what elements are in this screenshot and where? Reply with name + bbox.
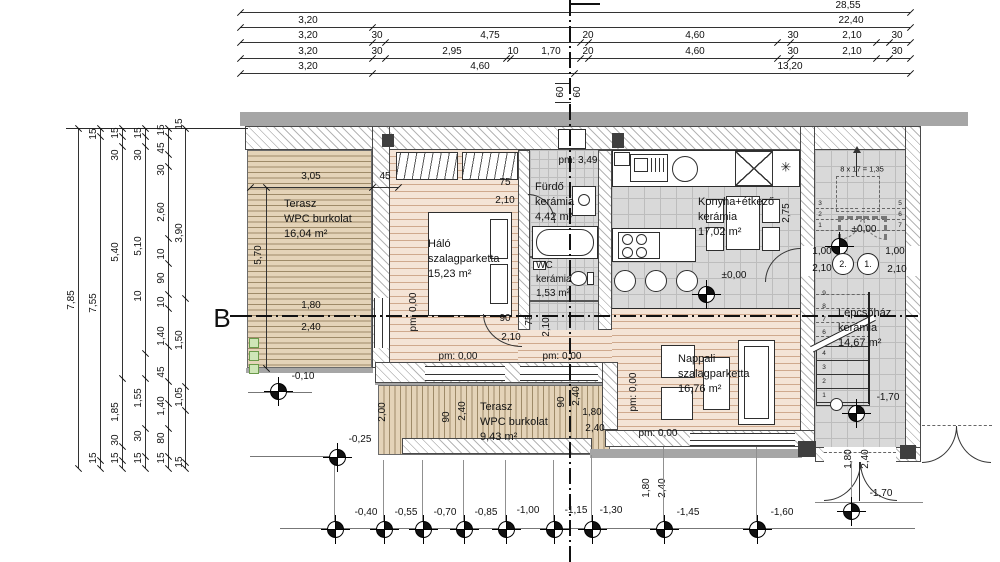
- dim-label: 15: [175, 456, 185, 467]
- stair-step-number: 2: [818, 212, 822, 219]
- dim-row: [240, 12, 910, 13]
- level-text: pm: 0,00: [409, 293, 419, 332]
- dim-label: 15: [89, 128, 99, 139]
- stair-step-number: 4: [822, 351, 826, 358]
- room-area: 17,02 m²: [698, 225, 774, 240]
- dim-label: 2,10: [887, 265, 906, 275]
- level-marker-icon: [498, 521, 515, 538]
- dim-label: 2,40: [458, 401, 468, 420]
- room-area: 1,53 m²: [536, 287, 572, 301]
- gate-door-arc: [922, 426, 957, 463]
- level-marker-icon: [456, 521, 473, 538]
- room-finish: WPC burkolat: [480, 415, 548, 430]
- dim-label: 80: [157, 432, 167, 443]
- dim-label: 1,55: [134, 388, 144, 407]
- dim-row: [240, 73, 910, 74]
- dim-label: 20: [582, 31, 593, 41]
- sink-left-bowl: [634, 158, 648, 172]
- stair-step-number: 7: [898, 223, 902, 230]
- section-line-vertical: [569, 0, 571, 562]
- dim-label: 1,85: [111, 402, 121, 421]
- bar-stool: [645, 270, 667, 292]
- dim-tick: [142, 375, 149, 382]
- level-marker-icon: [749, 521, 766, 538]
- planter-icon: [249, 338, 259, 348]
- dim-tick: [907, 9, 914, 16]
- dim-label: 10: [157, 296, 167, 307]
- level-marker-icon: [546, 521, 563, 538]
- level-marker-icon: [327, 521, 344, 538]
- dim-label: 5,40: [111, 242, 121, 261]
- dim-label: 60: [556, 86, 566, 97]
- level-text: ±0,00: [722, 271, 747, 281]
- dim-label: 2,10: [842, 31, 861, 41]
- level-marker-icon: [656, 521, 673, 538]
- wardrobe: [396, 152, 458, 180]
- dim-label: 4,60: [685, 47, 704, 57]
- level-marker-icon: [415, 521, 432, 538]
- dim-label: 10: [507, 47, 518, 57]
- stair-upper-flight-dashed: [836, 176, 880, 212]
- level-marker-icon: [848, 405, 865, 422]
- dim-label: 30: [134, 149, 144, 160]
- dim-label: 3,20: [298, 31, 317, 41]
- dim-tick: [75, 465, 82, 472]
- dim-label: 2,40: [572, 386, 582, 405]
- room-name: Nappali: [678, 352, 750, 367]
- stair-direction-arrow-icon: [853, 146, 861, 153]
- south-edge-strip: [590, 449, 802, 458]
- dim-label: 30: [891, 47, 902, 57]
- dim-tick: [907, 39, 914, 46]
- dim-label: 4,60: [685, 31, 704, 41]
- dim-tick: [142, 350, 149, 357]
- dim-label: 15: [134, 127, 144, 138]
- room-finish: kerámia: [838, 321, 891, 336]
- dim-label: 1,00: [812, 247, 831, 257]
- wardrobe: [462, 152, 518, 180]
- toilet-bowl: [570, 271, 587, 286]
- dim-label: 7,85: [67, 290, 77, 309]
- dim-tick: [237, 9, 244, 16]
- dim-label: 1,00: [885, 247, 904, 257]
- gate-door-arc: [956, 426, 991, 463]
- stair-step-number: 3: [818, 201, 822, 208]
- dim-tick: [182, 407, 189, 414]
- dim-label: 2,10: [542, 317, 552, 336]
- stair-step-number: 7: [822, 317, 826, 324]
- room-name: Lépcsőház: [838, 306, 891, 321]
- room-label-stairhall: Lépcsőház kerámia 14,67 m²: [838, 306, 891, 351]
- dim-tick: [165, 465, 172, 472]
- dim-label: 1,80: [582, 408, 601, 418]
- level-label: -0,40: [355, 508, 378, 518]
- bar-stool: [614, 270, 636, 292]
- dim-label: 4,75: [480, 31, 499, 41]
- dim-label: 30: [891, 31, 902, 41]
- wall-bedroom-bath: [518, 150, 530, 330]
- level-text: -1,70: [877, 393, 900, 403]
- dim-label: 2,10: [842, 47, 861, 57]
- level-label: -1,45: [677, 508, 700, 518]
- dim-label: 2,95: [442, 47, 461, 57]
- dim-label: 4,60: [470, 62, 489, 72]
- window-terrace-wall: [374, 298, 390, 348]
- dim-label: 10: [134, 290, 144, 301]
- dim-col: [145, 128, 146, 468]
- dim-label: 1,40: [157, 326, 167, 345]
- level-label: -1,60: [771, 508, 794, 518]
- porch-edge-line: [815, 502, 923, 503]
- room-area: 9,43 m²: [480, 430, 548, 445]
- level-marker-icon: [843, 503, 860, 520]
- room-name: Terasz: [284, 197, 352, 212]
- level-marker-icon: [329, 449, 346, 466]
- dim-label: 15: [157, 124, 167, 135]
- door-tag-1: 1.: [857, 253, 879, 275]
- dim-label: 2,40: [861, 449, 871, 468]
- dim-tick: [237, 24, 244, 31]
- exterior-retaining-wall: [240, 112, 968, 126]
- chimney-box: [558, 129, 586, 149]
- dim-label: 30: [787, 47, 798, 57]
- dim-label: 30: [787, 31, 798, 41]
- dim-label: 30: [111, 149, 121, 160]
- level-marker-icon: [376, 521, 393, 538]
- dim-label: 30: [157, 164, 167, 175]
- dim-label: 3,20: [298, 47, 317, 57]
- wall-bath-kitchen: [598, 150, 612, 330]
- dim-tick: [97, 465, 104, 472]
- stair-step-number: 1: [818, 223, 822, 230]
- dim-col: [78, 128, 79, 468]
- dim-row: [240, 58, 910, 59]
- dim-label: 5,10: [134, 236, 144, 255]
- sink-drainer-icon: [651, 158, 664, 172]
- dim-row: [240, 27, 910, 28]
- level-text: pm: 0,00: [639, 429, 678, 439]
- burner-icon: [636, 234, 647, 245]
- window-living-south: [690, 433, 795, 446]
- dim-tick: [907, 55, 914, 62]
- counter-module: [614, 152, 630, 166]
- dim-tick: [873, 39, 880, 46]
- section-line-b-end: [232, 315, 252, 317]
- bar-stool: [676, 270, 698, 292]
- room-name: Háló: [428, 237, 500, 252]
- room-finish: szalagparketta: [428, 252, 500, 267]
- dim-label: 1,05: [175, 387, 185, 406]
- level-label: -1,00: [517, 506, 540, 516]
- window-bedroom-south: [425, 366, 505, 381]
- dim-label: 90: [557, 396, 567, 407]
- level-label: -0,10: [292, 372, 315, 382]
- level-label: -1,70: [870, 489, 893, 499]
- dim-label: 1,80: [301, 301, 320, 311]
- dim-label: 45: [379, 172, 390, 182]
- level-marker-icon: [270, 383, 287, 400]
- dim-label: 15: [134, 452, 144, 463]
- room-label-wc: WC kerámia 1,53 m²: [536, 259, 572, 301]
- level-text: pm: 3,49: [559, 156, 598, 166]
- room-label-kitchen: Konyha+étkező kerámia 17,02 m²: [698, 195, 774, 240]
- fridge-icon: [735, 151, 773, 186]
- level-label: -0,25: [349, 435, 372, 445]
- room-finish: kerámia: [698, 210, 774, 225]
- freezer-snowflake-icon: ✳: [781, 161, 792, 176]
- wall-terrace-living: [602, 362, 618, 430]
- dim-row: [240, 42, 910, 43]
- dim-label: 45: [157, 142, 167, 153]
- dim-tick: [165, 235, 172, 242]
- level-label: -1,30: [600, 506, 623, 516]
- dim-label: 1,40: [157, 396, 167, 415]
- room-label-terrace-lower: Terasz WPC burkolat 9,43 m²: [480, 400, 548, 445]
- dim-tick: [119, 465, 126, 472]
- dim-col: [100, 128, 101, 468]
- chimney-block: [612, 133, 624, 148]
- bathtub-basin: [536, 229, 594, 256]
- dim-label: 15: [111, 127, 121, 138]
- room-name: Terasz: [480, 400, 548, 415]
- planter-icon: [249, 364, 259, 374]
- dim-label: 15: [157, 452, 167, 463]
- section-line-b: [230, 315, 918, 317]
- dim-tick: [119, 375, 126, 382]
- stair-step-number: 6: [822, 330, 826, 337]
- stair-step-number: 1: [822, 393, 826, 400]
- level-text: pm: 0,00: [629, 373, 639, 412]
- dim-tick: [165, 425, 172, 432]
- dim-label: 22,40: [838, 16, 863, 26]
- round-basin: [672, 156, 698, 182]
- dim-label: 2,10: [812, 264, 831, 274]
- stair-step-number: 5: [898, 201, 902, 208]
- door-terrace-lower: [520, 366, 598, 381]
- stair-step-number: 6: [898, 212, 902, 219]
- room-label-terrace-upper: Terasz WPC burkolat 16,04 m²: [284, 197, 352, 242]
- dim-tick: [571, 70, 578, 77]
- dim-label: 1,70: [541, 47, 560, 57]
- dim-label: 2,75: [782, 203, 792, 222]
- door-tag-text: 1.: [864, 259, 872, 269]
- room-label-bedroom: Háló szalagparketta 15,23 m²: [428, 237, 500, 282]
- stair-newel: [830, 398, 843, 411]
- section-line-end: [570, 3, 600, 5]
- dim-label: 15: [175, 118, 185, 129]
- dim-label: 2,10: [495, 196, 514, 206]
- dim-label: 90: [442, 411, 452, 422]
- stair-note: 8 x 17 = 1,35: [840, 165, 884, 173]
- dim-label: 2,40: [585, 424, 604, 434]
- burner-icon: [622, 234, 633, 245]
- dim-label: 75: [499, 178, 510, 188]
- dim-label: 15: [111, 452, 121, 463]
- dim-label: 90: [157, 272, 167, 283]
- door-tag-text: 2.: [839, 259, 847, 269]
- burner-icon: [622, 247, 633, 258]
- level-marker-icon: [698, 286, 715, 303]
- dim-label: 30: [371, 31, 382, 41]
- planter-icon: [249, 351, 259, 361]
- room-finish: szalagparketta: [678, 367, 750, 382]
- dim-label: 2,00: [378, 402, 388, 421]
- dim-tick: [237, 70, 244, 77]
- dim-label: 1,80: [844, 449, 854, 468]
- dim-label: 20: [582, 47, 593, 57]
- floor-plan-canvas: ✳ 28,55 3,20: [0, 0, 1000, 562]
- dim-tick: [382, 39, 389, 46]
- dim-tick: [237, 55, 244, 62]
- room-area: 16,76 m²: [678, 382, 750, 397]
- stair-step-dashed: [862, 208, 905, 209]
- dim-tick: [382, 55, 389, 62]
- level-label: -0,85: [475, 508, 498, 518]
- dim-tick: [907, 70, 914, 77]
- level-text: ±0,00: [852, 225, 877, 235]
- room-finish: kerámia: [536, 273, 572, 287]
- level-label: -0,55: [395, 508, 418, 518]
- dim-label: 7,55: [89, 293, 99, 312]
- dim-label: 15: [89, 452, 99, 463]
- dim-label: 13,20: [777, 62, 802, 72]
- dim-col: [168, 128, 169, 468]
- wall-east-exterior: [905, 126, 921, 462]
- level-text: pm: 0,00: [439, 352, 478, 362]
- room-area: 14,67 m²: [838, 336, 891, 351]
- dim-label: 2,10: [501, 333, 520, 343]
- section-letter-b: B: [213, 305, 230, 331]
- dim-label: 3,05: [301, 172, 320, 182]
- dim-label: 2,40: [301, 323, 320, 333]
- washbasin-bowl-icon: [578, 194, 590, 206]
- dim-label: 30: [371, 47, 382, 57]
- room-name: Konyha+étkező: [698, 195, 774, 210]
- toilet-tank: [587, 272, 594, 285]
- wall-pier: [900, 445, 916, 459]
- stair-step-number: 3: [822, 365, 826, 372]
- door-opening-east: [906, 246, 920, 276]
- wall-kitchen-stairhall: [800, 126, 815, 447]
- room-label-living: Nappali szalagparketta 16,76 m²: [678, 352, 750, 397]
- level-marker-icon: [584, 521, 601, 538]
- dim-label: 5,70: [254, 245, 264, 264]
- dim-tick: [873, 55, 880, 62]
- dim-tick: [182, 295, 189, 302]
- room-area: 15,23 m²: [428, 267, 500, 282]
- dim-label: 30: [134, 430, 144, 441]
- burner-icon: [636, 247, 647, 258]
- dim-tick: [237, 39, 244, 46]
- dim-label: 3,20: [298, 62, 317, 72]
- dim-label: 3,90: [175, 223, 185, 242]
- dim-label: 10: [157, 248, 167, 259]
- dim-label: 60: [573, 86, 583, 97]
- stair-step-number: 8: [822, 304, 826, 311]
- dim-col: [185, 128, 186, 468]
- wall-pier: [798, 441, 816, 457]
- stair-step-number: 9: [822, 291, 826, 298]
- dim-label: 1,80: [642, 478, 652, 497]
- room-area: 16,04 m²: [284, 227, 352, 242]
- dim-col: [122, 128, 123, 468]
- dim-label: 28,55: [835, 1, 860, 11]
- room-name: WC: [536, 259, 572, 273]
- dim-tick: [774, 39, 781, 46]
- dim-label: 3,20: [298, 16, 317, 26]
- dim-label: 45: [157, 366, 167, 377]
- dim-tick: [142, 465, 149, 472]
- level-text: pm: 0,00: [543, 352, 582, 362]
- room-finish: WPC burkolat: [284, 212, 352, 227]
- dim-label: 2,60: [157, 202, 167, 221]
- dim-tick: [907, 24, 914, 31]
- door-tag-2: 2.: [832, 253, 854, 275]
- wall-pier: [382, 134, 394, 147]
- dim-label: 1,50: [175, 330, 185, 349]
- dim-col: [266, 187, 267, 368]
- stair-step-dashed: [816, 208, 858, 209]
- stair-step-number: 2: [822, 379, 826, 386]
- dim-tick: [165, 378, 172, 385]
- level-label: -0,70: [434, 508, 457, 518]
- dim-label: 30: [111, 434, 121, 445]
- dim-row: [250, 187, 398, 188]
- dim-tick: [165, 260, 172, 267]
- dim-tick: [369, 70, 376, 77]
